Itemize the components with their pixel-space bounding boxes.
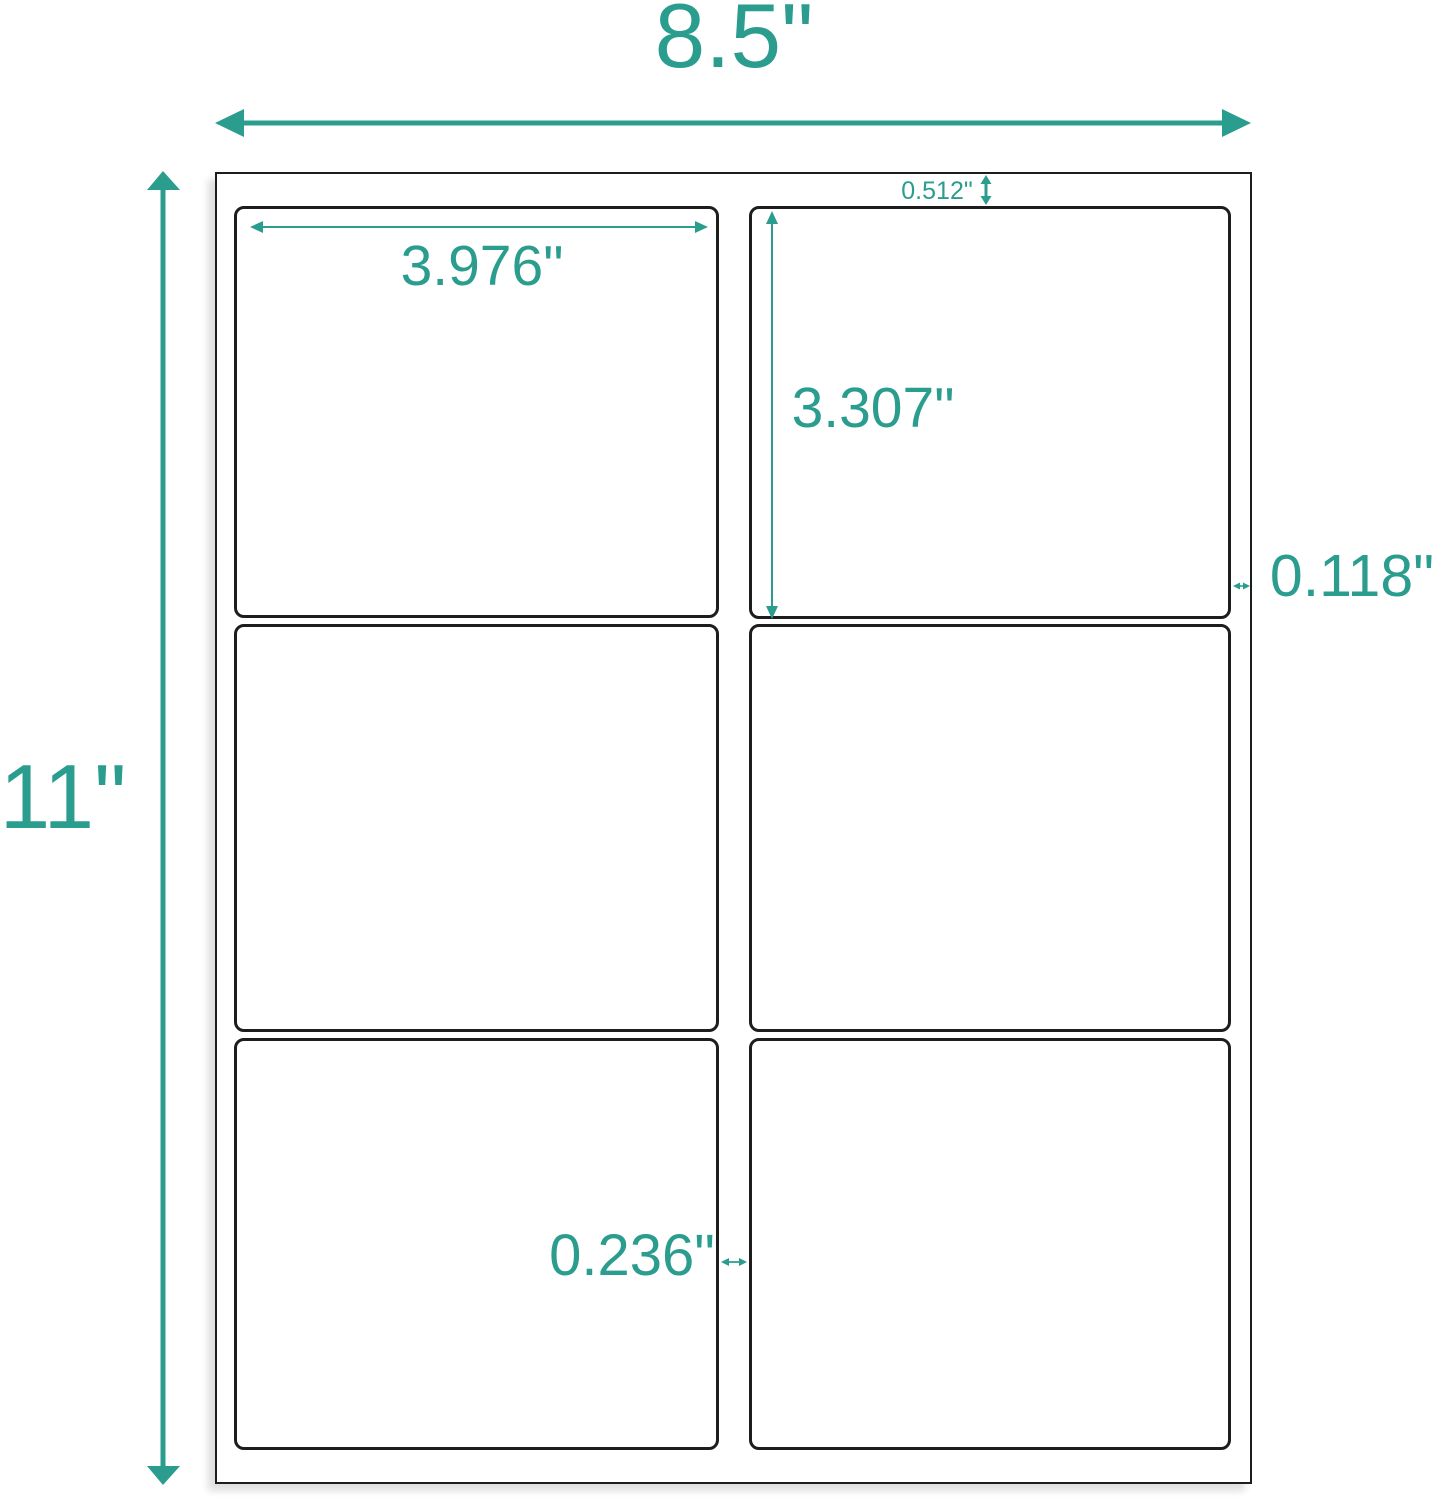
svg-text:0.118": 0.118" <box>1270 543 1433 609</box>
svg-text:8.5": 8.5" <box>655 0 814 87</box>
svg-text:3.976": 3.976" <box>401 234 564 298</box>
svg-text:11": 11" <box>0 747 126 848</box>
svg-text:0.236": 0.236" <box>549 1223 715 1288</box>
svg-text:0.512": 0.512" <box>901 177 972 205</box>
svg-text:3.307": 3.307" <box>792 376 955 440</box>
